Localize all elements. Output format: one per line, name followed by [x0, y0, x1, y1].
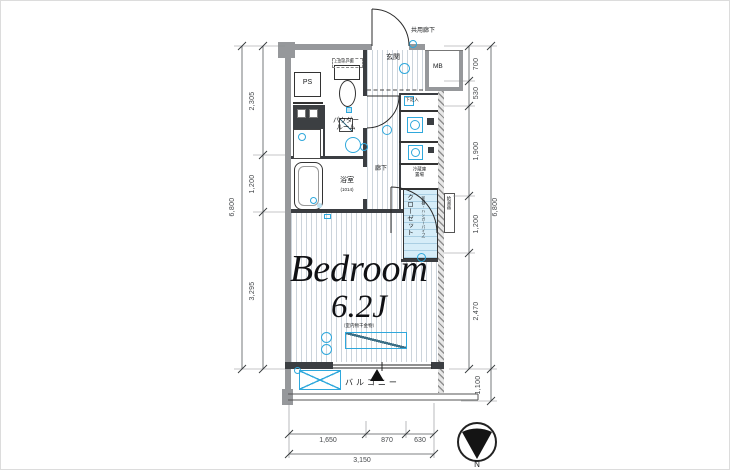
- dim-bottom-total: 3,150: [332, 457, 392, 464]
- dim-left-total: 6,800: [229, 177, 241, 237]
- bedroom-size-label: 6.2J: [284, 289, 434, 326]
- balcony-railing: [288, 394, 478, 400]
- bedroom-label: Bedroom: [284, 247, 434, 291]
- bathroom-size-label: (1014): [332, 188, 362, 193]
- common-corridor-label: 共用廊下: [411, 28, 435, 35]
- dim-right-3: 1,900: [473, 121, 485, 181]
- entrance-label: 玄関: [378, 54, 408, 62]
- bedroom-note-label: （室内物干金物）: [303, 324, 416, 329]
- floor-plan: 共用廊下 玄関 MB PS 上部吊戸棚 下足入 パウダー ルーム 廊下 浴室 (…: [0, 0, 730, 470]
- balcony-label: バルコニー: [345, 378, 400, 387]
- mb-label: MB: [433, 63, 443, 70]
- dim-bottom-3: 630: [390, 437, 450, 444]
- powder-room-label: パウダー ルーム: [323, 117, 369, 132]
- dim-right-2: 530: [473, 63, 485, 123]
- door-swing-arcs: [367, 9, 437, 233]
- water-heater-label: 給湯器: [445, 196, 450, 222]
- upper-cabinet-label: 上部吊戸棚: [334, 60, 354, 64]
- fridge-label: 冷蔵庫 置場: [406, 168, 434, 178]
- dim-left-2: 1,200: [249, 154, 261, 214]
- compass-icon: [458, 423, 496, 461]
- dim-left-1: 2,305: [249, 71, 261, 131]
- dim-right-4: 1,200: [473, 194, 485, 254]
- dim-right-balcony: 1,100: [475, 355, 487, 415]
- compass-north-label: N: [467, 460, 487, 469]
- closet-note-label: （枕棚・ハンガーパイプ）: [420, 193, 424, 234]
- window-lines: [333, 362, 432, 371]
- hallway-label: 廊下: [369, 166, 393, 173]
- dim-right-5: 2,470: [473, 281, 485, 341]
- linework-layer: [1, 1, 730, 470]
- shoe-box-label: 下足入: [405, 98, 419, 103]
- bathroom-label: 浴室: [327, 177, 367, 185]
- dim-left-3: 3,295: [249, 261, 261, 321]
- ps-label: PS: [294, 79, 321, 87]
- dim-bottom-1: 1,650: [298, 437, 358, 444]
- dim-right-total: 6,800: [492, 177, 504, 237]
